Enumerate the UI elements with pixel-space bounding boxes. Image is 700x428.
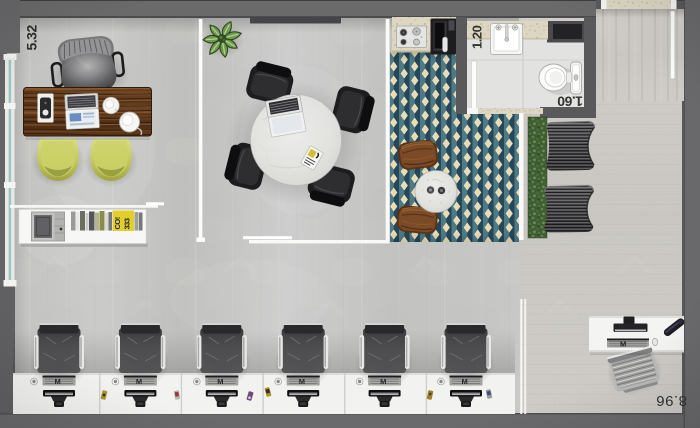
svg-text:M: M: [620, 340, 626, 349]
svg-text:1.20: 1.20: [470, 25, 485, 49]
svg-text:1.60: 1.60: [557, 94, 583, 110]
svg-text:333: 333: [123, 218, 132, 229]
svg-text:CO!: CO!: [113, 217, 122, 229]
svg-text:8.96: 8.96: [656, 392, 687, 409]
svg-text:5.32: 5.32: [24, 25, 40, 51]
